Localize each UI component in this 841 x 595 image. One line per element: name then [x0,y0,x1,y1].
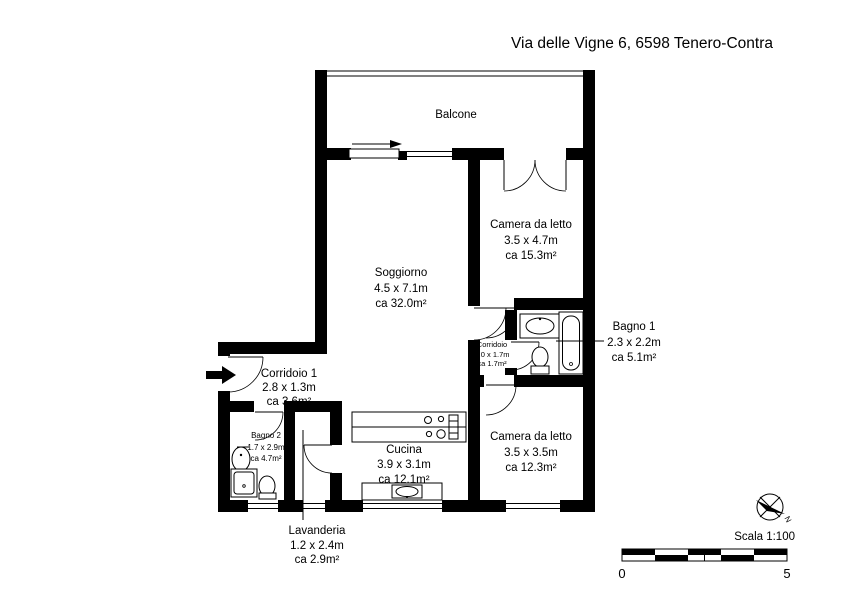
label-bagno2: Bagno 2 1.7 x 2.9m ca 4.7m² [247,431,285,463]
svg-text:Corridoio 1: Corridoio 1 [261,368,317,380]
door-lavanderia [304,445,332,473]
svg-text:2.8 x 1.3m: 2.8 x 1.3m [262,382,316,394]
svg-text:1.2 x 2.4m: 1.2 x 2.4m [290,540,344,552]
scale-start: 0 [618,566,625,581]
svg-text:1.7 x 2.9m: 1.7 x 2.9m [247,443,285,452]
svg-text:ca 12.1m²: ca 12.1m² [378,474,429,486]
svg-text:4.5 x 7.1m: 4.5 x 7.1m [374,283,428,295]
shower-icon [231,469,257,497]
svg-text:ca 12.3m²: ca 12.3m² [505,462,556,474]
door-camera2 [486,385,516,415]
svg-text:3.5 x 4.7m: 3.5 x 4.7m [504,235,558,247]
svg-text:Cucina: Cucina [386,444,422,456]
svg-text:ca 4.7m²: ca 4.7m² [250,454,281,463]
svg-text:3.9 x 3.1m: 3.9 x 3.1m [377,459,431,471]
cucina-fixtures [352,412,466,500]
floorplan-page: Via delle Vigne 6, 6598 Tenero-Contra [0,0,841,595]
svg-text:2.3 x 2.2m: 2.3 x 2.2m [607,337,661,349]
toilet-icon [531,347,549,374]
svg-text:Camera da letto: Camera da letto [490,431,572,443]
label-corridoio: Corridoio 1.0 x 1.7m ca 1.7m² [474,340,509,368]
page-title: Via delle Vigne 6, 6598 Tenero-Contra [511,35,773,52]
svg-text:ca 15.3m²: ca 15.3m² [505,250,556,262]
label-camera2: Camera da letto 3.5 x 3.5m ca 12.3m² [490,431,572,474]
svg-text:ca 2.9m²: ca 2.9m² [295,554,340,566]
label-bagno1: Bagno 1 2.3 x 2.2m ca 5.1m² [607,321,661,364]
svg-text:1.0 x 1.7m: 1.0 x 1.7m [474,350,509,359]
bagno1-fixtures [520,312,583,374]
svg-text:ca 5.1m²: ca 5.1m² [612,352,657,364]
svg-text:ca 1.7m²: ca 1.7m² [477,359,507,368]
balcony-railing [315,71,595,76]
label-corridoio1: Corridoio 1 2.8 x 1.3m ca 3.6m² [261,368,317,408]
svg-text:Soggiorno: Soggiorno [375,267,427,279]
toilet-icon [259,476,276,499]
svg-text:Bagno 2: Bagno 2 [251,431,281,440]
north-compass-icon: N [756,494,793,524]
svg-text:ca 32.0m²: ca 32.0m² [375,298,426,310]
scale-bar [622,549,787,561]
north-label: N [782,515,793,525]
svg-text:Camera da letto: Camera da letto [490,219,572,231]
scale-label: Scala 1:100 [734,531,795,543]
label-camera1: Camera da letto 3.5 x 4.7m ca 15.3m² [490,219,572,262]
svg-text:ca 3.6m²: ca 3.6m² [267,396,312,408]
label-lavanderia: Lavanderia 1.2 x 2.4m ca 2.9m² [289,525,347,566]
bathtub-icon [559,312,583,374]
label-soggiorno: Soggiorno 4.5 x 7.1m ca 32.0m² [374,267,428,310]
entry-arrow-icon [206,366,236,384]
label-balcone: Balcone [435,109,477,121]
svg-text:3.5 x 3.5m: 3.5 x 3.5m [504,447,558,459]
floorplan-drawing: Via delle Vigne 6, 6598 Tenero-Contra [0,0,841,595]
french-door [504,160,566,191]
svg-text:Bagno 1: Bagno 1 [613,321,656,333]
label-cucina: Cucina 3.9 x 3.1m ca 12.1m² [377,444,431,486]
door-soggiorno-corridoio [474,308,506,340]
svg-text:Corridoio: Corridoio [477,340,507,349]
slide-arrow-icon [390,140,402,148]
svg-text:Lavanderia: Lavanderia [289,525,347,537]
scale-end: 5 [783,566,790,581]
